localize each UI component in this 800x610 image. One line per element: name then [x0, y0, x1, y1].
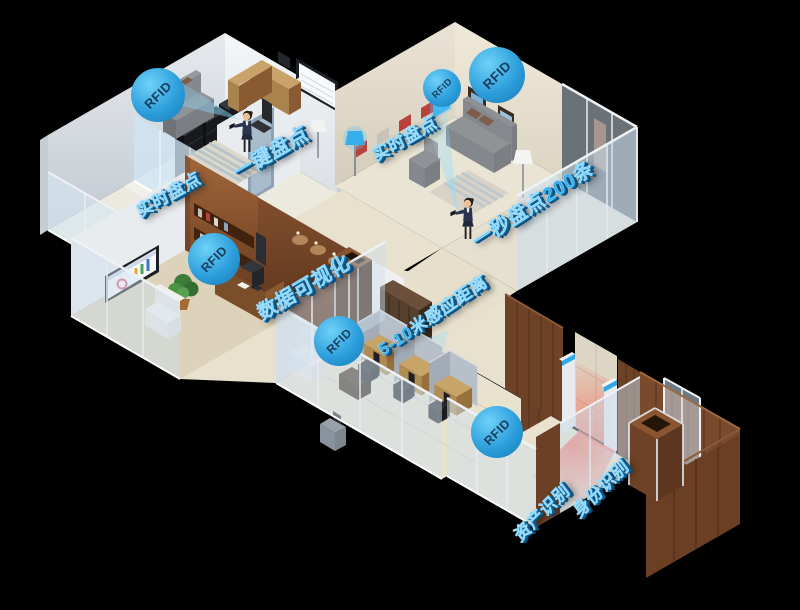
- rfid-badge-3: RFID: [188, 233, 240, 285]
- downlight: [314, 241, 317, 244]
- isometric-scene-canvas: RFIDRFIDRFIDRFIDRFIDRFID: [0, 0, 800, 610]
- person-2-leg: [465, 227, 467, 239]
- rfid-badge-6: RFID: [423, 69, 461, 107]
- rfid-badge-2: RFID: [469, 47, 525, 103]
- person-1-skirt: [241, 134, 252, 140]
- person-2-skirt: [462, 221, 473, 227]
- person-1-head: [243, 113, 250, 120]
- person-2-leg: [469, 227, 471, 239]
- floor-lamp-shade: [513, 150, 533, 164]
- person-1-leg: [244, 140, 246, 152]
- floor-lamp-shade: [309, 120, 327, 132]
- downlight-glow: [292, 235, 308, 245]
- wall-wood: [536, 423, 560, 527]
- rfid-office-illustration: RFIDRFIDRFIDRFIDRFIDRFID 实时盘点 一键盘点 实时盘点 …: [0, 0, 800, 610]
- downlight: [296, 231, 299, 234]
- person-2-hair-bun: [470, 198, 474, 202]
- exec-chair-back: [256, 232, 266, 266]
- person-2-collar: [467, 208, 470, 213]
- rfid-badge-1: RFID: [131, 68, 185, 122]
- downlight-glow: [310, 245, 326, 255]
- person-1-leg: [248, 140, 250, 152]
- rfid-badge-5: RFID: [471, 406, 523, 458]
- wall-edge: [40, 135, 48, 235]
- person-1-hair-bun: [249, 111, 253, 115]
- person-1-collar: [246, 121, 249, 126]
- rfid-badge-4: RFID: [314, 316, 364, 366]
- person-2-head: [464, 200, 471, 207]
- blue-lamp-shade: [345, 131, 365, 145]
